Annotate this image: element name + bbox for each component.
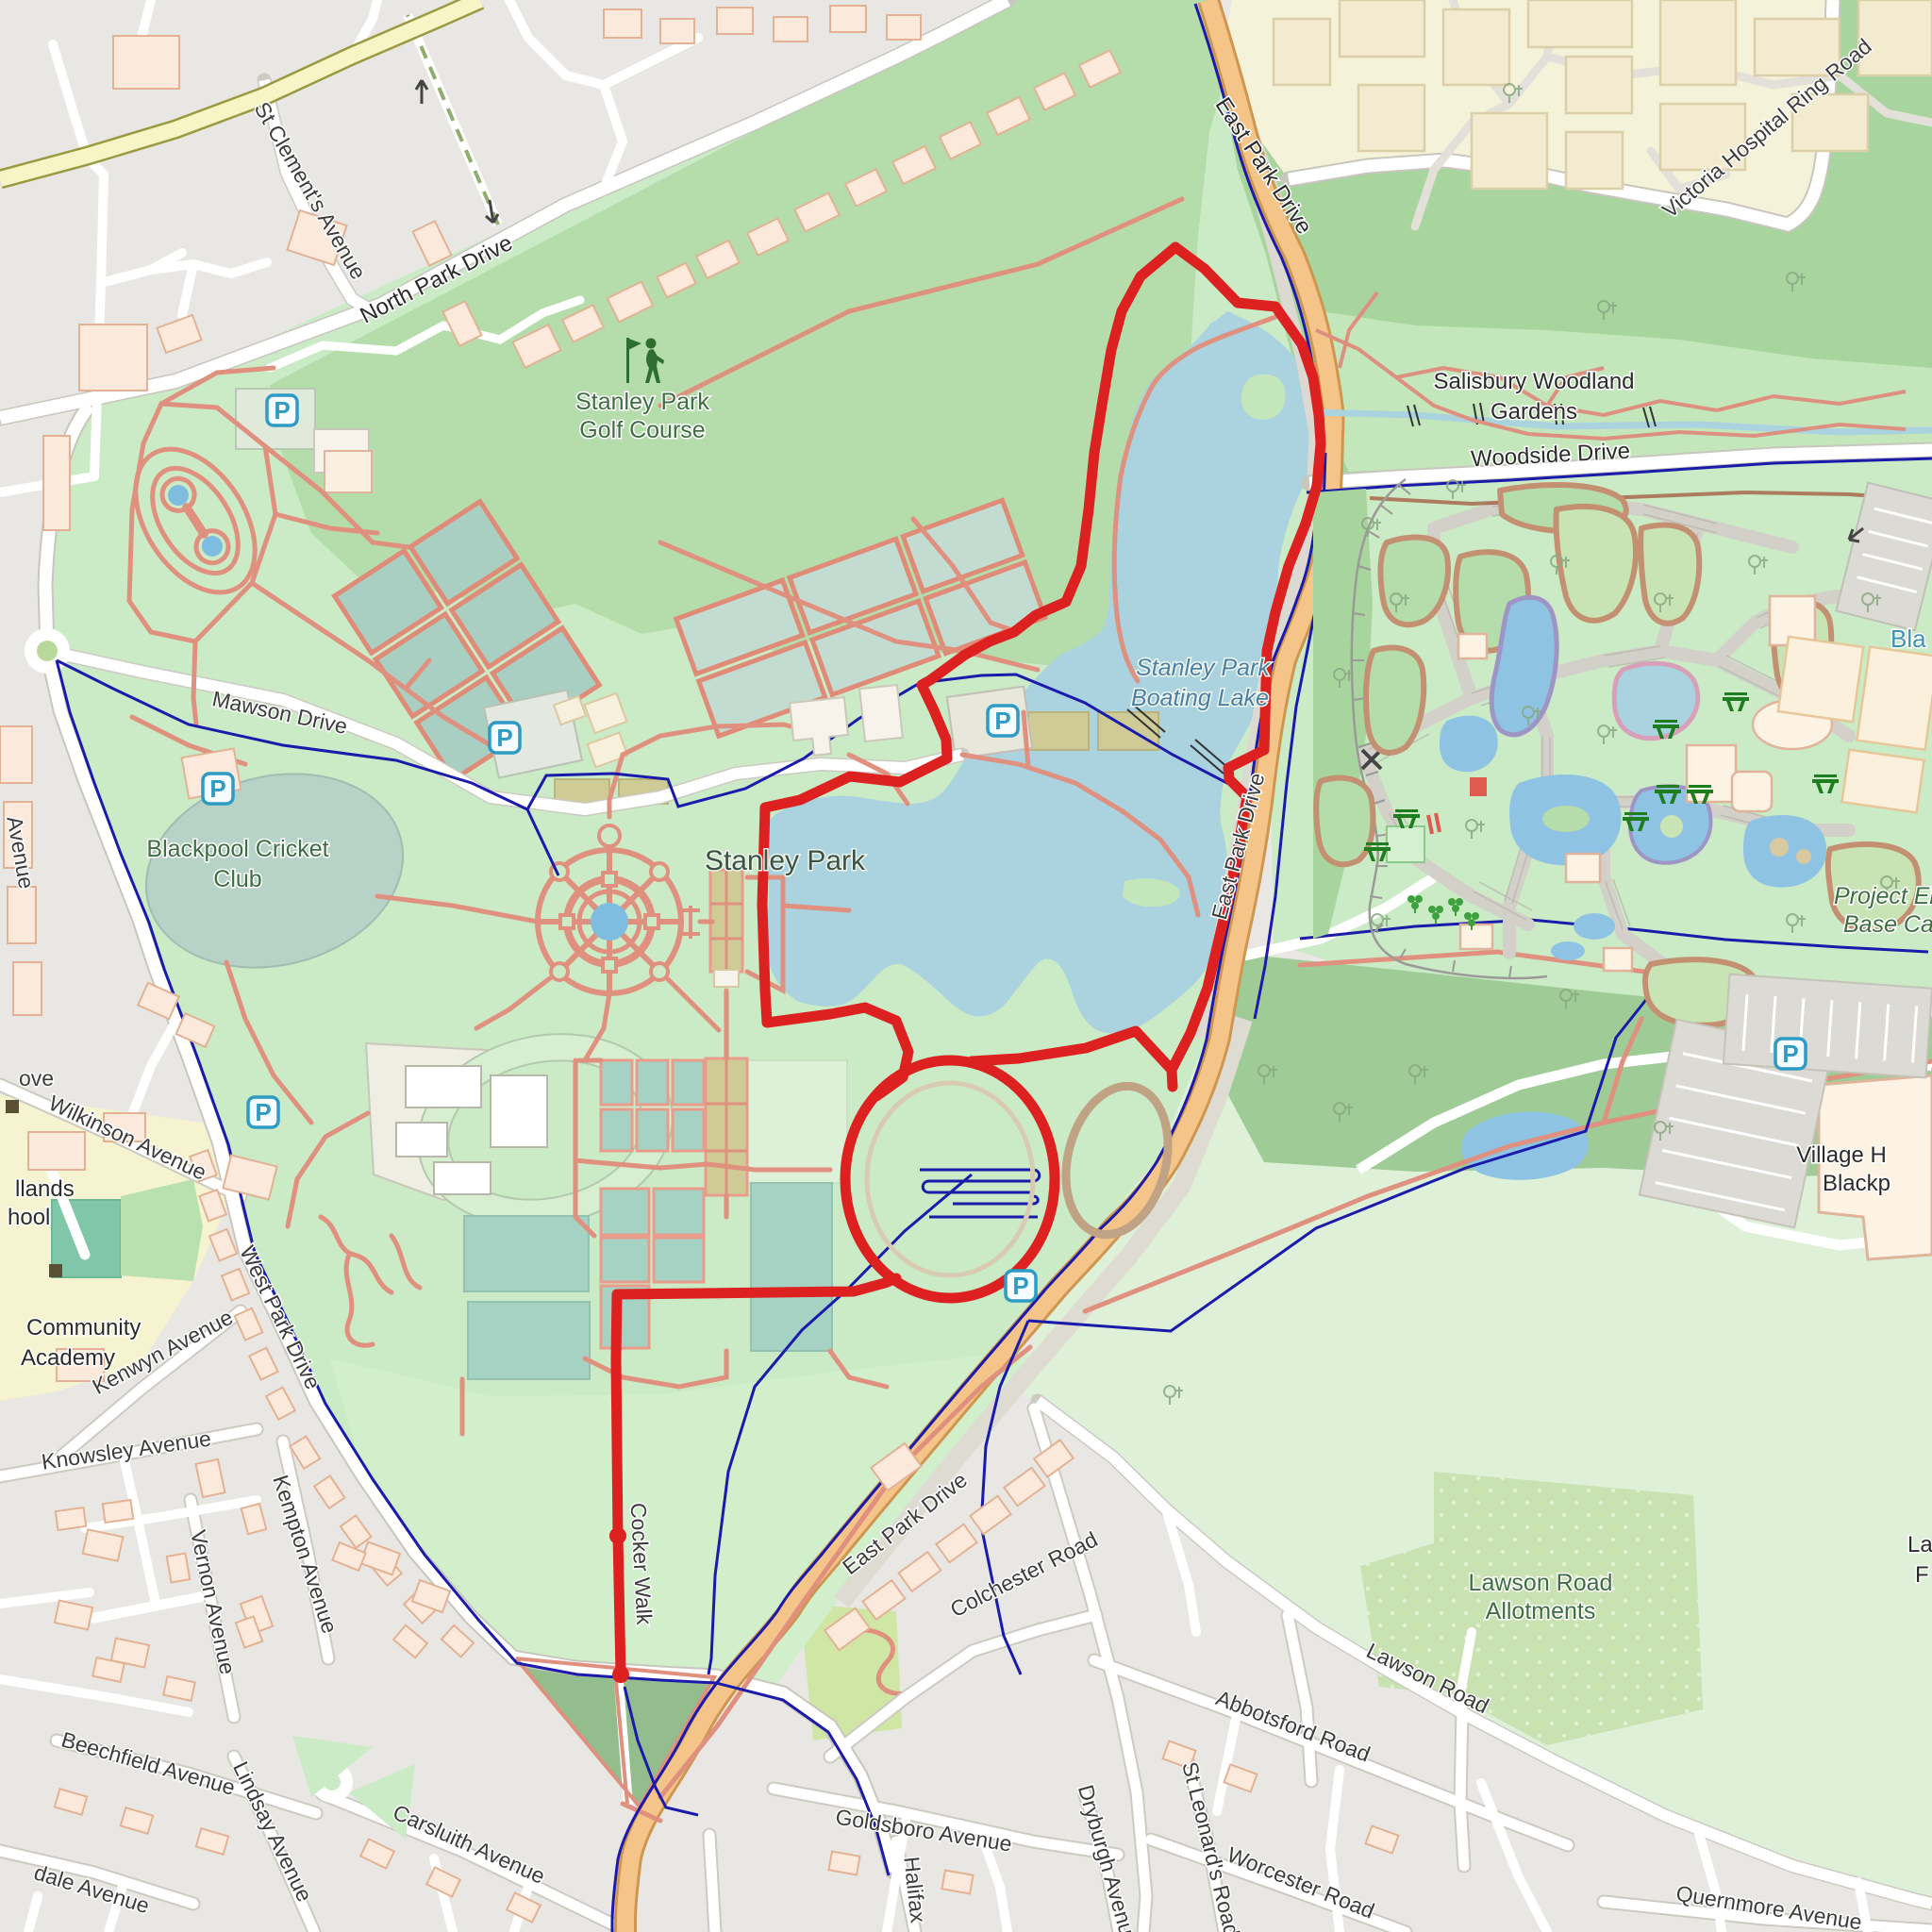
svg-text:P: P [1782, 1040, 1798, 1068]
svg-text:Lawson Road: Lawson Road [1469, 1570, 1613, 1596]
svg-text:Village H: Village H [1796, 1142, 1887, 1168]
svg-text:Academy: Academy [21, 1345, 115, 1371]
svg-text:Community: Community [26, 1315, 141, 1341]
svg-text:Stanley Park: Stanley Park [705, 845, 866, 876]
svg-text:P: P [255, 1098, 271, 1126]
svg-text:Base Ca: Base Ca [1843, 911, 1932, 938]
svg-text:Project Ele: Project Ele [1834, 883, 1932, 909]
svg-text:P: P [209, 774, 225, 803]
svg-text:Blackpool Cricket: Blackpool Cricket [146, 836, 328, 862]
svg-text:Gardens: Gardens [1491, 399, 1577, 425]
svg-text:ove: ove [19, 1066, 54, 1091]
svg-text:P: P [1012, 1272, 1028, 1300]
svg-text:Boating Lake: Boating Lake [1131, 685, 1269, 711]
svg-text:Bla: Bla [1890, 625, 1926, 653]
svg-text:F: F [1915, 1562, 1929, 1588]
svg-text:P: P [994, 707, 1010, 735]
svg-text:llands: llands [15, 1176, 75, 1202]
svg-text:Allotments: Allotments [1486, 1598, 1596, 1624]
svg-text:P: P [274, 396, 290, 425]
svg-text:hool: hool [8, 1205, 50, 1230]
svg-text:P: P [496, 724, 512, 752]
svg-text:Blackp: Blackp [1823, 1171, 1890, 1196]
svg-text:Salisbury Woodland: Salisbury Woodland [1433, 369, 1634, 394]
svg-text:Stanley Park: Stanley Park [575, 389, 709, 415]
svg-text:Golf Course: Golf Course [579, 417, 705, 443]
svg-text:Club: Club [213, 866, 261, 892]
svg-text:La: La [1907, 1532, 1932, 1557]
svg-text:Stanley Park: Stanley Park [1136, 655, 1271, 681]
